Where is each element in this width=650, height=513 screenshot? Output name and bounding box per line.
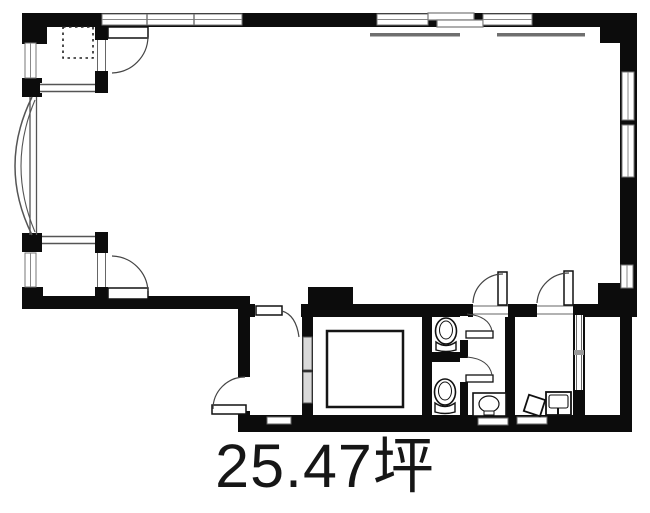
window-right-lower — [621, 265, 633, 288]
partition-topleft-room-bottom — [40, 83, 95, 93]
wall-left-post-lower — [22, 233, 42, 252]
vent-middle-room — [517, 417, 547, 424]
window-left-lower — [25, 253, 36, 287]
elevator-door-slot-lower — [303, 372, 312, 403]
wall-corner-top-left — [22, 13, 47, 44]
window-top-middle — [377, 14, 428, 25]
wall-bottomleft-room-right-upper — [95, 232, 108, 253]
window-top-left-run — [102, 14, 242, 25]
doorway-topleft-room — [95, 40, 108, 71]
door-corridor — [473, 272, 507, 305]
equipment-dotted-outline — [63, 27, 93, 58]
wall-left-post-upper — [22, 78, 42, 97]
wall-lower-bottom — [238, 415, 632, 432]
small-fixture — [524, 395, 545, 416]
washbasin-icon — [473, 393, 506, 416]
door-leaf — [466, 375, 493, 382]
wall-stall-partition — [430, 352, 463, 362]
vent-room-a — [267, 417, 291, 424]
opening-middle-right-room — [574, 315, 584, 390]
toilet-icon-upper — [436, 318, 457, 352]
window-left-upper — [25, 43, 36, 78]
toilet-icon-lower — [435, 379, 456, 414]
door-swing-arc — [112, 37, 148, 73]
door-swing-arc — [467, 357, 492, 375]
kitchen-sink-icon — [546, 392, 571, 415]
door-leaf — [466, 331, 493, 338]
vent-corridor — [478, 418, 508, 425]
wall-elevator-pillar — [308, 287, 353, 305]
wall-topleft-room-right-upper — [95, 26, 108, 40]
door-leaf — [564, 271, 573, 305]
door-leaf — [498, 272, 507, 305]
doorway-middle-room — [537, 304, 573, 317]
wall-elevator-stalls — [422, 304, 432, 432]
elevator-car — [327, 331, 403, 407]
fixtures — [327, 318, 571, 416]
door-middle-room — [537, 271, 573, 305]
window-right-middle — [622, 125, 634, 177]
interior-rail-right — [497, 33, 585, 37]
partition-bottomleft-room-top — [42, 235, 95, 245]
door-swing-arc — [112, 256, 148, 291]
window-right-upper — [622, 72, 634, 120]
door-leaf — [212, 405, 246, 414]
door-stall-lower — [466, 357, 493, 382]
doorway-corridor — [473, 304, 508, 317]
floor-plan: 25.47坪 — [0, 0, 650, 513]
bay-window — [15, 97, 37, 235]
door-topleft-room — [108, 27, 148, 73]
window-top-right — [483, 14, 532, 25]
elevator-door-slot-upper — [303, 337, 312, 370]
wall-lower-right — [620, 304, 632, 432]
area-label: 25.47坪 — [0, 433, 650, 500]
door-stall-upper — [466, 314, 493, 338]
door-leaf — [108, 27, 148, 38]
door-bottomleft-room — [108, 256, 148, 299]
doorway-bottomleft-room — [95, 253, 108, 287]
interior-rail-left — [370, 33, 460, 37]
wall-topleft-room-right-lower — [95, 71, 108, 93]
door-leaf — [108, 288, 148, 299]
door-leaf — [256, 306, 282, 315]
